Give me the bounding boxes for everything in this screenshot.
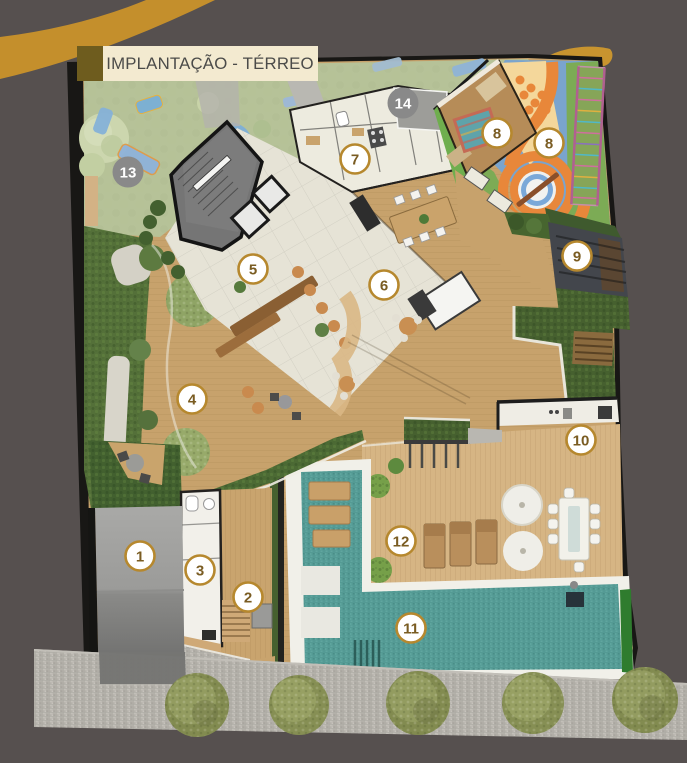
- svg-text:5: 5: [249, 262, 257, 279]
- svg-text:6: 6: [380, 278, 388, 295]
- svg-text:7: 7: [351, 152, 359, 169]
- svg-text:8: 8: [493, 126, 501, 143]
- svg-text:8: 8: [545, 136, 553, 153]
- svg-text:13: 13: [120, 165, 137, 182]
- svg-text:9: 9: [573, 249, 581, 266]
- svg-text:1: 1: [136, 549, 144, 566]
- svg-text:IMPLANTAÇÃO - TÉRREO: IMPLANTAÇÃO - TÉRREO: [106, 53, 314, 73]
- svg-text:10: 10: [573, 433, 590, 450]
- svg-text:14: 14: [395, 96, 412, 113]
- svg-text:3: 3: [196, 563, 204, 580]
- svg-text:4: 4: [188, 392, 197, 409]
- svg-text:2: 2: [244, 590, 252, 607]
- svg-text:12: 12: [393, 534, 410, 551]
- svg-text:11: 11: [403, 621, 419, 638]
